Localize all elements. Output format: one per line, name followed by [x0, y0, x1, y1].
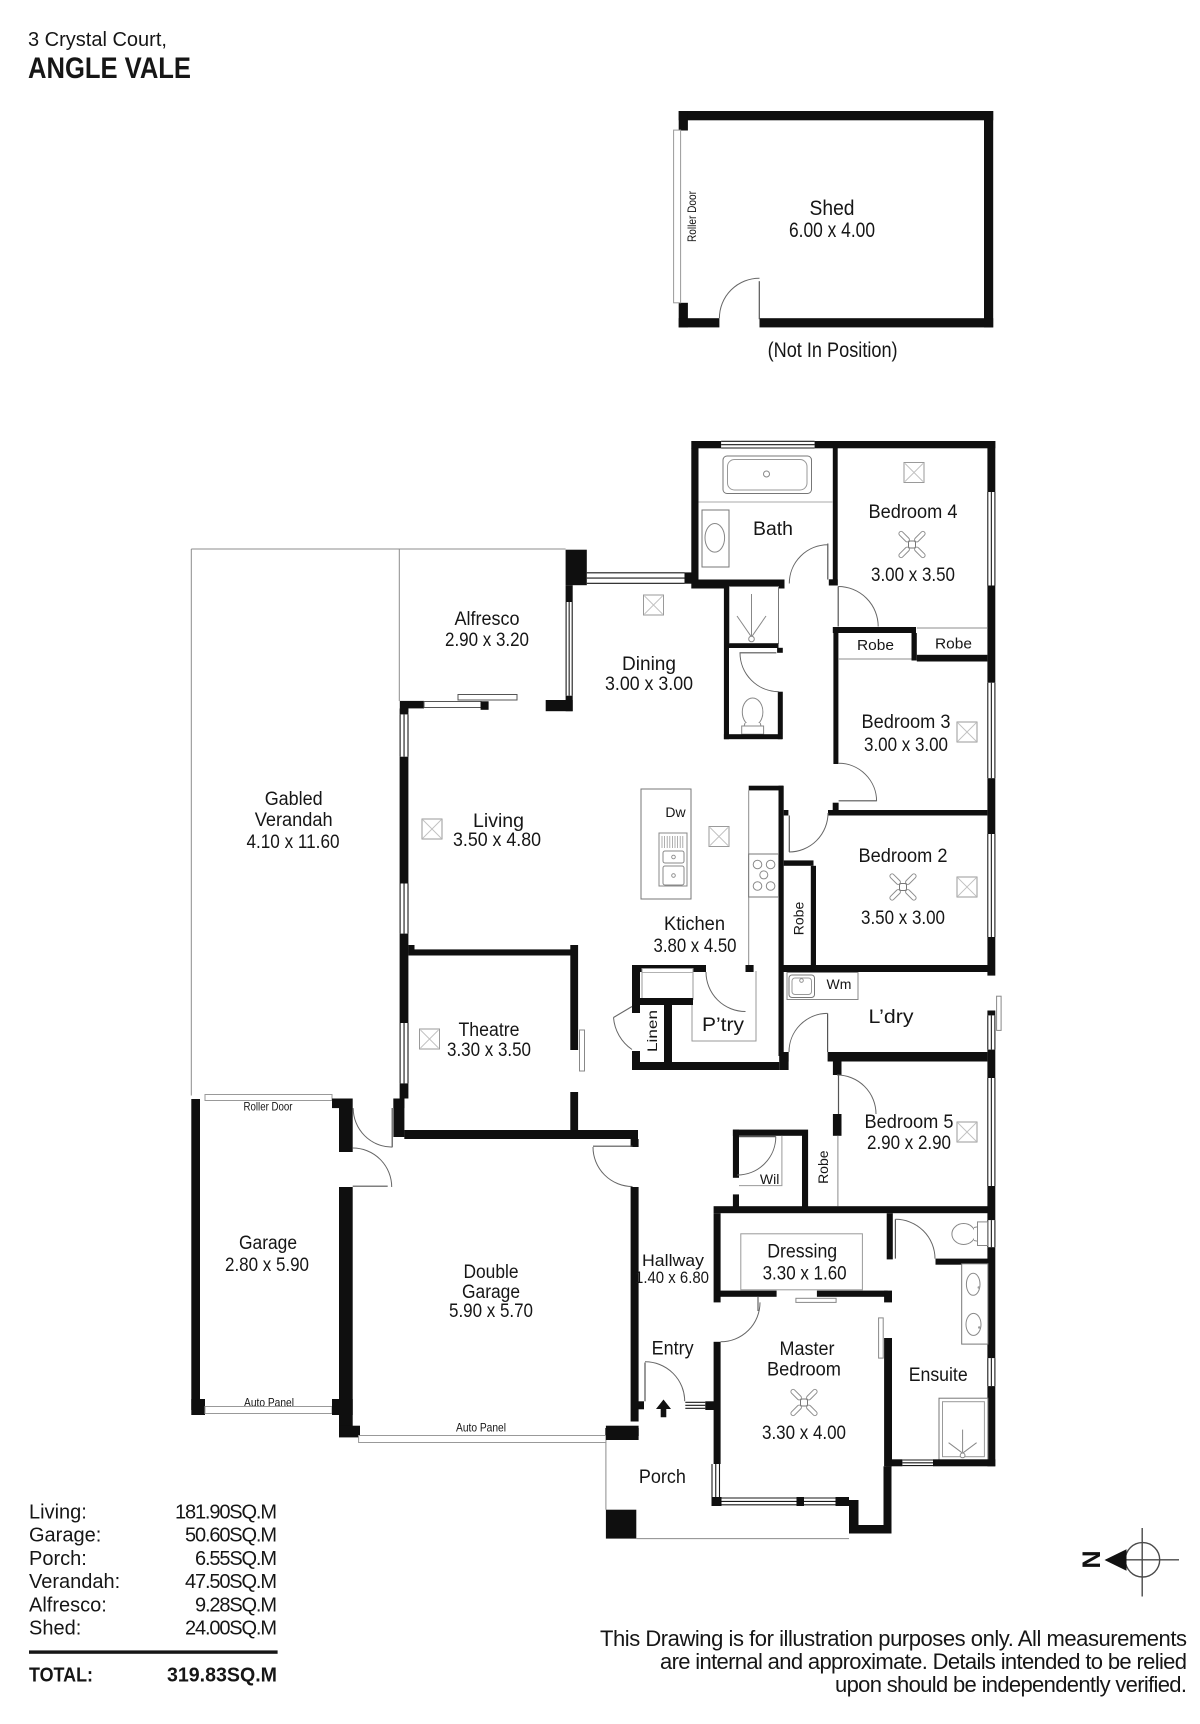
svg-text:Roller Door: Roller Door: [685, 191, 699, 242]
svg-text:Alfresco: Alfresco: [455, 609, 520, 630]
svg-text:Garage:: Garage:: [29, 1525, 101, 1547]
svg-text:Robe: Robe: [815, 1150, 831, 1184]
svg-text:3.30 x 1.60: 3.30 x 1.60: [763, 1264, 847, 1285]
svg-text:Porch: Porch: [639, 1467, 686, 1488]
svg-text:2.90 x 3.20: 2.90 x 3.20: [445, 630, 529, 651]
svg-text:Entry: Entry: [652, 1339, 694, 1360]
svg-text:3.00 x 3.00: 3.00 x 3.00: [605, 674, 693, 695]
svg-text:3.00 x 3.00: 3.00 x 3.00: [864, 735, 948, 756]
svg-text:Roller Door: Roller Door: [244, 1100, 293, 1114]
svg-text:Theatre: Theatre: [459, 1020, 520, 1041]
svg-text:(Not In Position): (Not In Position): [768, 339, 898, 362]
svg-text:3.30 x 3.50: 3.30 x 3.50: [447, 1040, 531, 1061]
svg-text:Linen: Linen: [644, 1010, 660, 1052]
svg-text:Dressing: Dressing: [767, 1242, 837, 1263]
svg-text:Bedroom: Bedroom: [767, 1360, 841, 1381]
svg-text:2.90 x 2.90: 2.90 x 2.90: [867, 1133, 951, 1154]
svg-text:Wm: Wm: [827, 976, 852, 992]
svg-text:3.30 x 4.00: 3.30 x 4.00: [762, 1423, 846, 1444]
svg-text:47.50SQ.M: 47.50SQ.M: [185, 1571, 277, 1593]
svg-text:N: N: [1076, 1550, 1104, 1568]
svg-text:This Drawing is for illustrati: This Drawing is for illustration purpose…: [600, 1626, 1187, 1651]
svg-text:4.10 x 11.60: 4.10 x 11.60: [247, 832, 340, 853]
svg-text:3.50 x 4.80: 3.50 x 4.80: [453, 830, 541, 851]
svg-text:50.60SQ.M: 50.60SQ.M: [185, 1525, 277, 1547]
svg-text:3 Crystal Court,: 3 Crystal Court,: [28, 29, 167, 51]
svg-text:3.00 x 3.50: 3.00 x 3.50: [871, 565, 955, 586]
svg-text:Bedroom 2: Bedroom 2: [859, 846, 948, 867]
svg-text:181.90SQ.M: 181.90SQ.M: [175, 1502, 277, 1524]
svg-text:Porch:: Porch:: [29, 1548, 87, 1570]
svg-text:are internal and approximate.: are internal and approximate. Details in…: [660, 1649, 1187, 1674]
svg-text:Robe: Robe: [791, 902, 807, 936]
svg-text:Gabled: Gabled: [265, 789, 323, 810]
svg-text:Ensuite: Ensuite: [909, 1365, 968, 1386]
svg-text:Auto Panel: Auto Panel: [456, 1421, 506, 1435]
svg-text:3.80 x 4.50: 3.80 x 4.50: [654, 936, 737, 957]
svg-text:24.00SQ.M: 24.00SQ.M: [185, 1618, 277, 1640]
svg-text:Verandah:: Verandah:: [29, 1571, 120, 1593]
svg-text:Verandah: Verandah: [255, 810, 333, 831]
svg-text:Master: Master: [780, 1339, 836, 1360]
svg-text:1.40 x 6.80: 1.40 x 6.80: [635, 1268, 709, 1287]
svg-text:Shed: Shed: [810, 197, 855, 220]
svg-text:Shed:: Shed:: [29, 1618, 81, 1640]
svg-text:6.00 x 4.00: 6.00 x 4.00: [789, 219, 875, 242]
svg-text:Robe: Robe: [857, 637, 894, 654]
svg-text:L’dry: L’dry: [869, 1007, 915, 1028]
svg-text:3.50 x 3.00: 3.50 x 3.00: [861, 908, 945, 929]
svg-text:P’try: P’try: [702, 1015, 745, 1036]
svg-text:Bath: Bath: [753, 519, 793, 540]
svg-text:upon should be independently v: upon should be independently verified.: [835, 1672, 1187, 1697]
svg-text:2.80 x 5.90: 2.80 x 5.90: [225, 1255, 309, 1276]
svg-text:6.55SQ.M: 6.55SQ.M: [195, 1548, 277, 1570]
svg-text:Bedroom 3: Bedroom 3: [862, 712, 951, 733]
svg-text:TOTAL:: TOTAL:: [29, 1664, 93, 1686]
svg-text:Bedroom 4: Bedroom 4: [869, 502, 958, 523]
svg-text:Ktichen: Ktichen: [664, 914, 725, 935]
svg-text:Dining: Dining: [622, 654, 676, 675]
svg-text:Dw: Dw: [665, 804, 686, 820]
svg-text:Living:: Living:: [29, 1502, 87, 1524]
svg-text:Robe: Robe: [935, 636, 972, 653]
svg-text:Bedroom 5: Bedroom 5: [865, 1112, 954, 1133]
svg-text:Alfresco:: Alfresco:: [29, 1594, 107, 1616]
svg-text:ANGLE VALE: ANGLE VALE: [28, 52, 191, 85]
svg-text:Wil: Wil: [760, 1171, 779, 1187]
svg-text:5.90 x 5.70: 5.90 x 5.70: [449, 1301, 533, 1322]
svg-text:9.28SQ.M: 9.28SQ.M: [195, 1594, 277, 1616]
svg-text:Living: Living: [473, 811, 524, 832]
svg-text:319.83SQ.M: 319.83SQ.M: [167, 1664, 277, 1686]
svg-text:Garage: Garage: [462, 1282, 520, 1303]
svg-text:Garage: Garage: [239, 1233, 297, 1254]
svg-text:Double: Double: [464, 1262, 519, 1283]
